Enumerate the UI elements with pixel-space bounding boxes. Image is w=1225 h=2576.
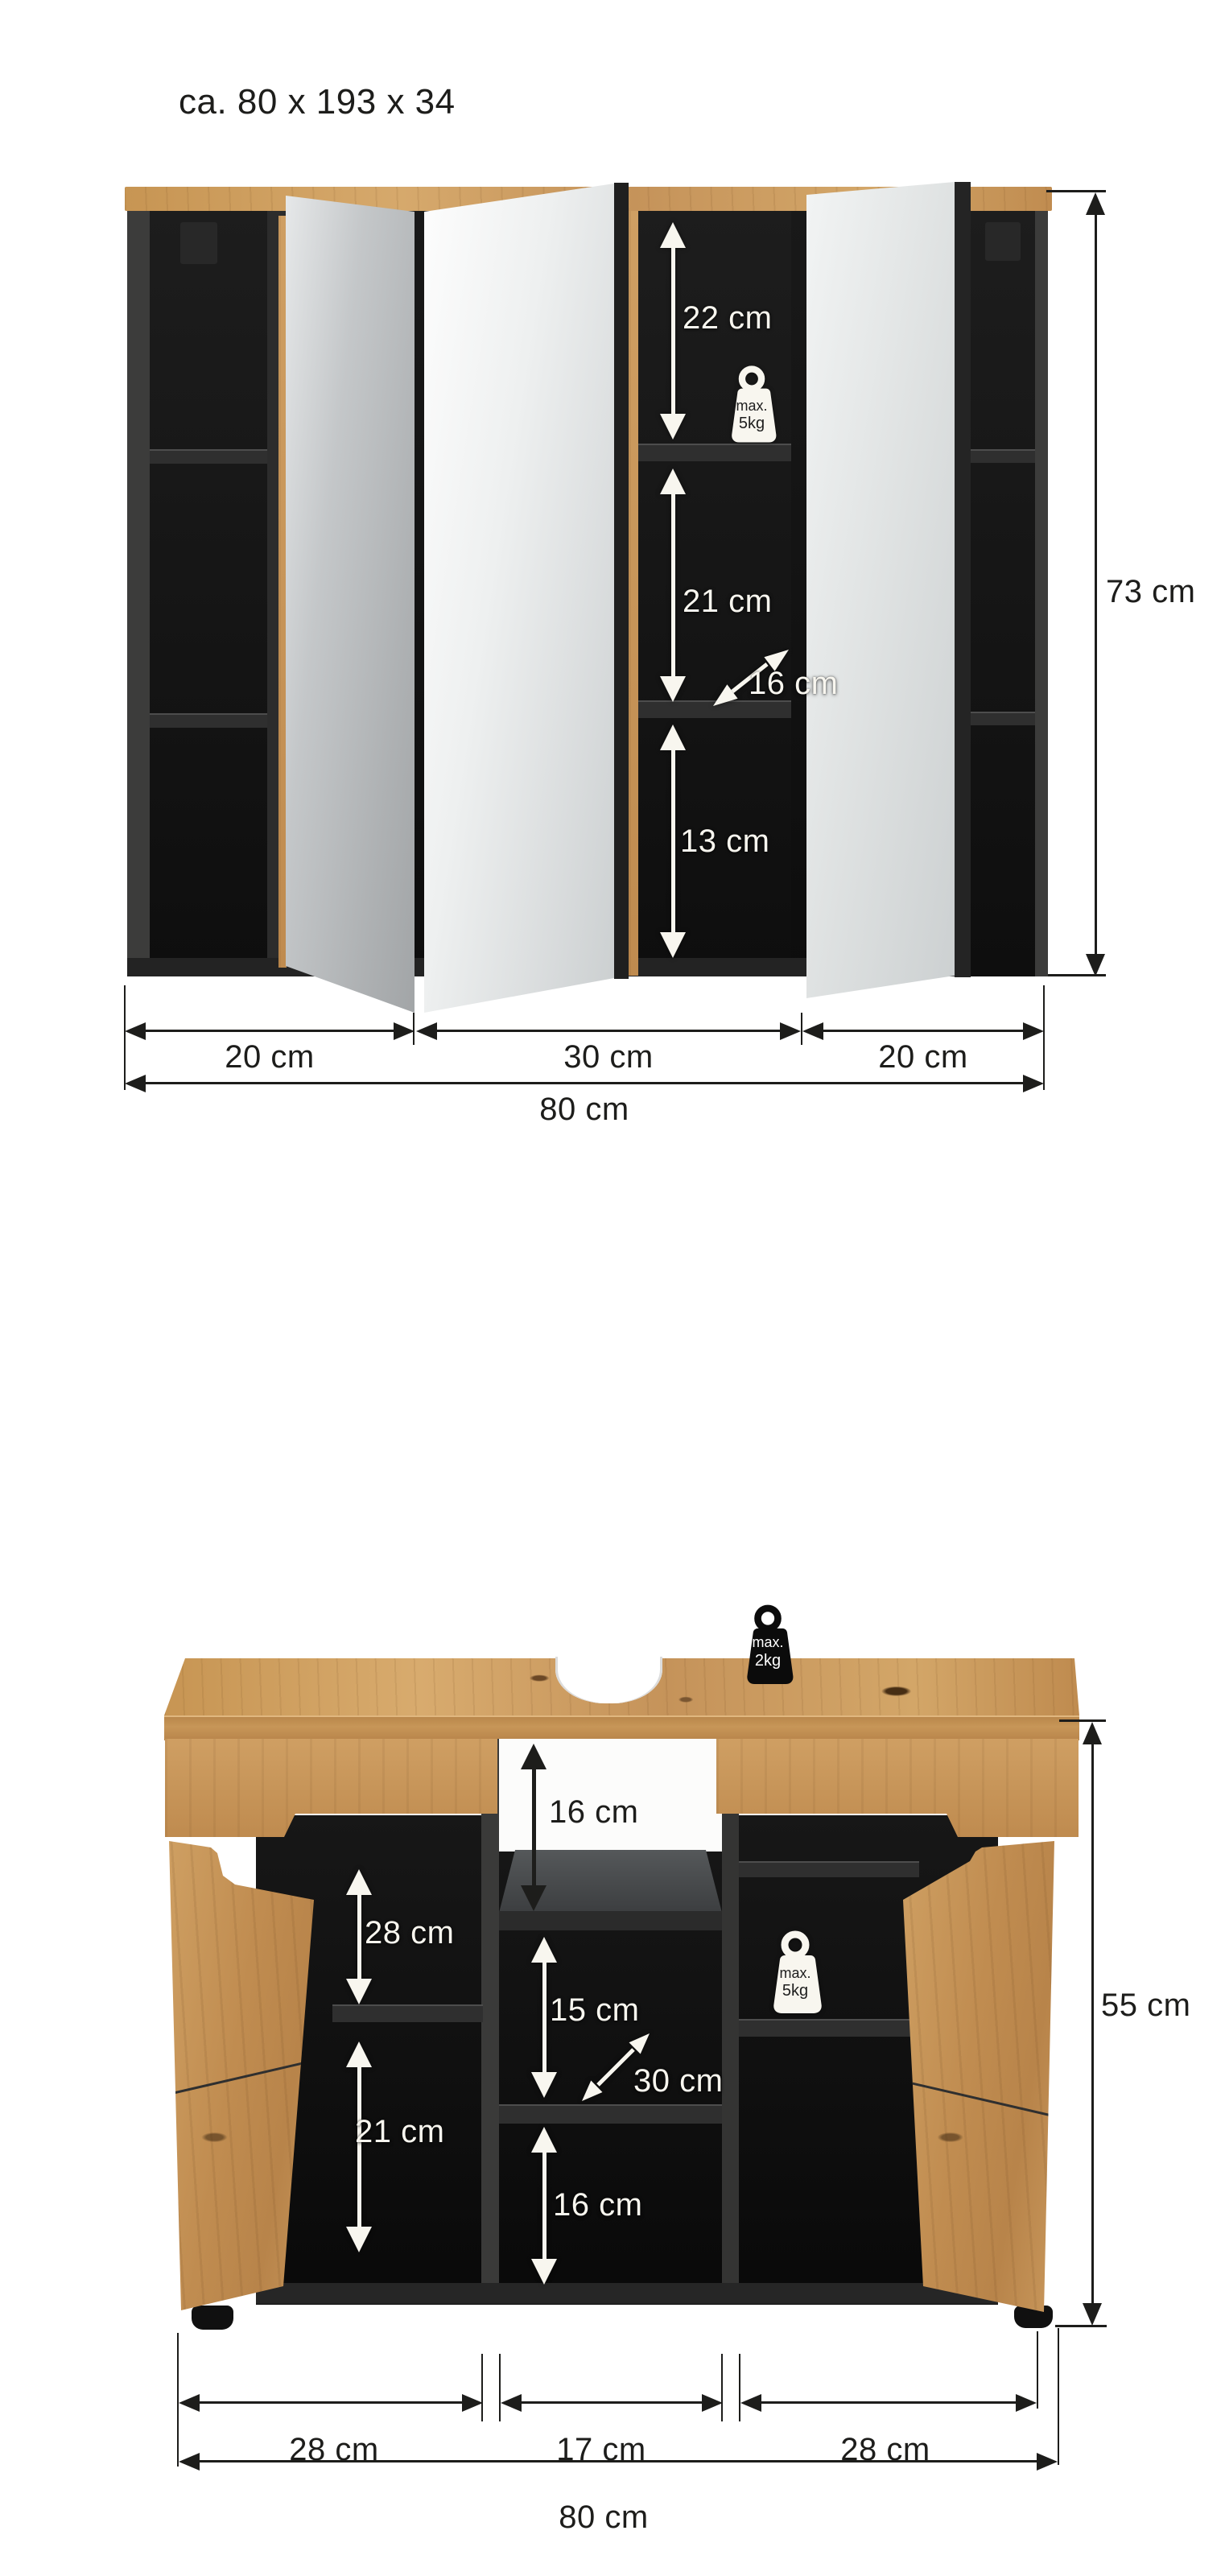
vc-cubby-front-edge: [499, 1911, 722, 1930]
mc-left-hinge-block: [180, 222, 217, 264]
vc-top-front-edge: [164, 1715, 1079, 1740]
mc-label-16cm: 16 cm: [749, 667, 838, 700]
page: { "title": "ca. 80 x 193 x 34", "mirror_…: [0, 0, 1225, 2576]
vc-door-right: [900, 1838, 1058, 2321]
mc-height-arrow: [1082, 192, 1109, 976]
mc-right-hinge-block: [985, 222, 1021, 261]
vc-weight-badge-2kg: max.2kg: [729, 1587, 806, 1705]
mc-fold-door-panel-right: [424, 184, 614, 1013]
vc-label-16cm-cutout: 16 cm: [549, 1795, 638, 1829]
mc-label-20cm-left: 20 cm: [225, 1040, 314, 1074]
mc-label-80cm: 80 cm: [539, 1092, 629, 1126]
vc-right-shelf-2: [739, 2019, 919, 2037]
mc-right-door-mirror: [806, 182, 955, 998]
vc-label-55cm: 55 cm: [1101, 1988, 1190, 2022]
vc-ext-right2: [1058, 2328, 1059, 2465]
mc-right-shelf-1: [971, 449, 1035, 463]
vc-right-shelf-1: [739, 1861, 919, 1877]
vc-label-28cm: 28 cm: [365, 1916, 454, 1950]
mc-label-20cm-right: 20 cm: [878, 1040, 967, 1074]
mc-badge-line2: 5kg: [711, 415, 792, 432]
vc-ext-right1: [1037, 2331, 1038, 2409]
vc-foot-left: [192, 2306, 233, 2330]
mc-label-30cm: 30 cm: [563, 1040, 653, 1074]
vc-badge-shelf-line1: max.: [755, 1965, 835, 1981]
mc-fold-door-panel-left: [286, 196, 415, 1013]
mc-left-shelf-1: [150, 449, 267, 464]
mc-left-column: [150, 211, 267, 976]
mc-right-column: [971, 211, 1035, 976]
vc-weight-badge-5kg: max.5kg: [755, 1929, 835, 2019]
mc-weight-badge-5kg: max.5kg: [711, 364, 792, 448]
mc-label-21cm: 21 cm: [683, 584, 772, 618]
mc-right-shelf-2: [971, 712, 1035, 725]
vc-dim-80-total: [179, 2451, 1058, 2472]
vc-badge-top-line2: 2kg: [729, 1652, 806, 1670]
mc-label-73cm: 73 cm: [1106, 575, 1195, 609]
vc-center-wall-left: [481, 1739, 499, 2304]
mc-label-13cm: 13 cm: [680, 824, 769, 858]
mc-right-side-panel: [1035, 211, 1048, 976]
mc-left-shelf-2: [150, 713, 267, 728]
vc-door-right-seam: [900, 2079, 1054, 2117]
vc-dim-28-left: [179, 2392, 483, 2413]
vc-label-21cm: 21 cm: [355, 2115, 444, 2149]
mc-badge-line1: max.: [711, 398, 792, 414]
vc-center-wall-right: [722, 1739, 739, 2304]
vc-label-15cm: 15 cm: [550, 1993, 639, 2027]
vc-badge-shelf-line2: 5kg: [755, 1982, 835, 2000]
vc-label-80cm: 80 cm: [559, 2500, 648, 2534]
vc-label-30cm: 30 cm: [633, 2064, 723, 2098]
mc-right-door-frame: [955, 182, 971, 977]
mc-left-side-panel: [127, 211, 150, 976]
mc-fold-door-back-edge-oak: [629, 211, 638, 976]
vc-door-left-seam: [165, 2059, 316, 2096]
vc-bottom-board: [256, 2283, 998, 2304]
page-title: ca. 80 x 193 x 34: [179, 84, 456, 121]
mc-fold-door-frame: [614, 183, 629, 979]
vc-height-arrow: [1079, 1722, 1106, 2326]
vc-arrow-16cm-cutout: [519, 1744, 548, 1911]
mc-fold-door-edge-oak: [278, 216, 287, 968]
vc-dim-28-right: [740, 2392, 1037, 2413]
vc-left-shelf: [332, 2004, 483, 2022]
vc-badge-top-line1: max.: [729, 1634, 806, 1650]
vc-dim-17-center: [501, 2392, 723, 2413]
vc-label-16cm-bottom: 16 cm: [553, 2188, 642, 2222]
mc-label-22cm: 22 cm: [683, 301, 772, 335]
